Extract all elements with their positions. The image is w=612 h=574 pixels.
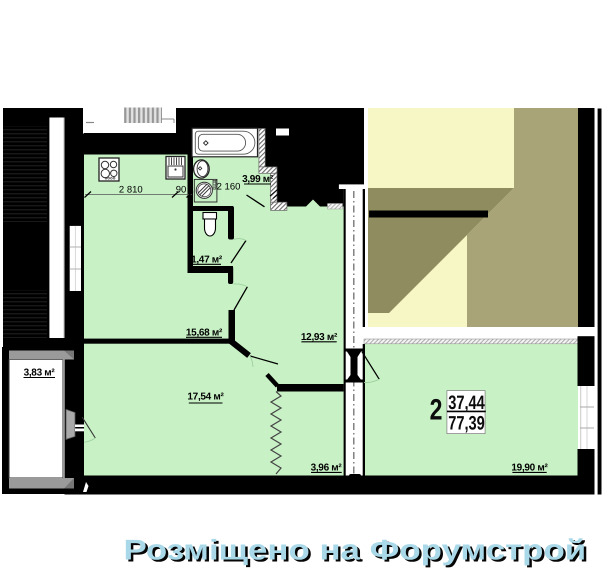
svg-text:3,83 м²: 3,83 м²	[24, 368, 56, 379]
svg-text:2: 2	[430, 394, 443, 427]
svg-text:37,44: 37,44	[448, 392, 485, 414]
svg-text:2 810: 2 810	[119, 185, 143, 196]
svg-text:77,39: 77,39	[448, 412, 485, 434]
svg-text:2 160: 2 160	[217, 182, 241, 193]
svg-text:Розміщено на Форумстрой: Розміщено на Форумстрой	[124, 535, 587, 567]
svg-text:17,54 м²: 17,54 м²	[187, 392, 224, 403]
svg-text:3,99 м²: 3,99 м²	[242, 174, 274, 185]
svg-text:90: 90	[176, 185, 187, 196]
